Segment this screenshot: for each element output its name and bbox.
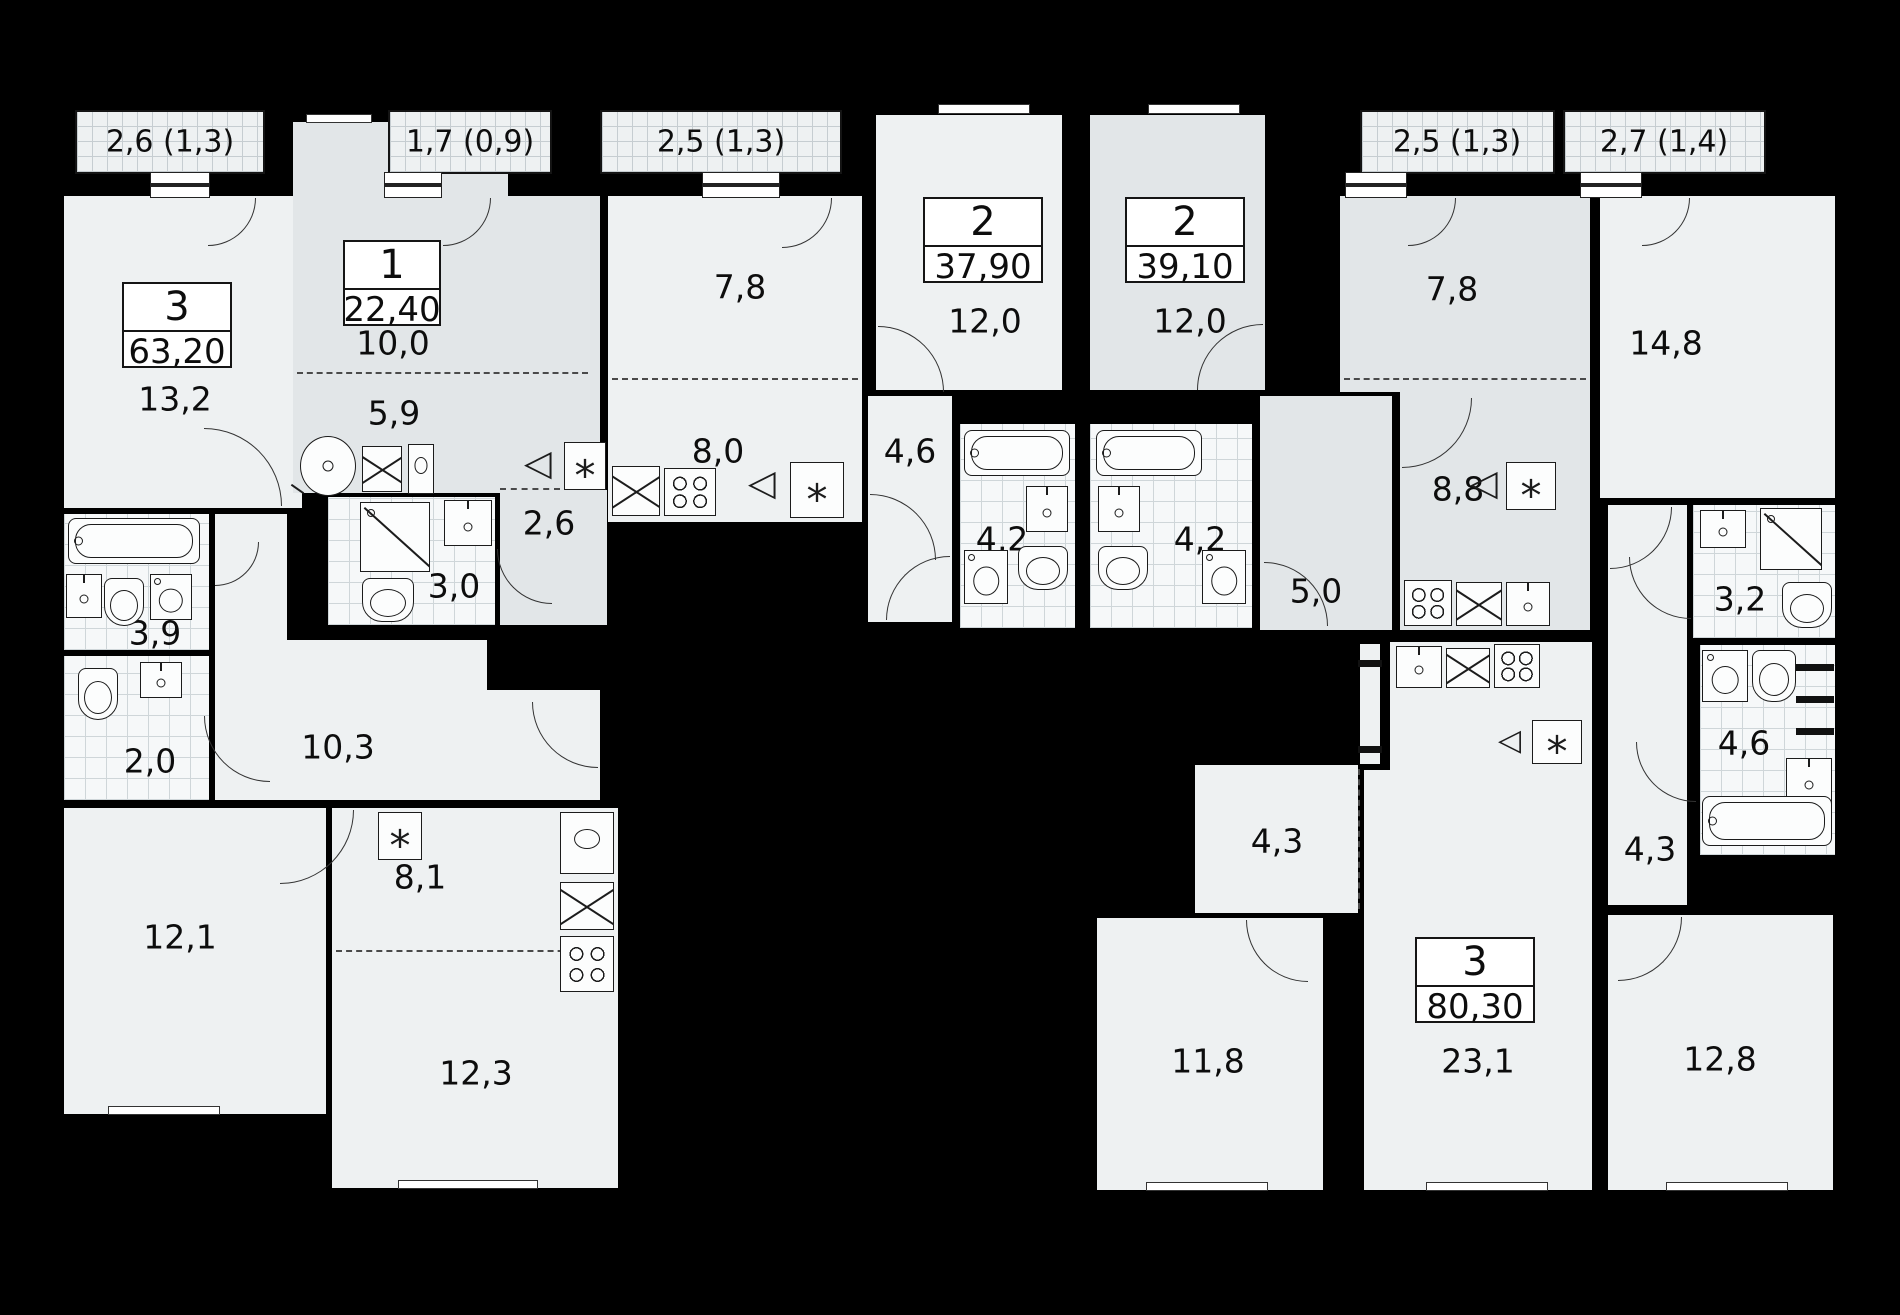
apt2-zone-divider xyxy=(297,372,588,374)
counter-sink-icon xyxy=(1506,582,1550,626)
apt5-type: 3 xyxy=(1417,939,1533,987)
apt5-infobox: 3 80,30 xyxy=(1415,937,1535,1023)
window xyxy=(1146,1182,1268,1191)
cooktop-icon xyxy=(664,468,716,516)
washing-machine-icon xyxy=(964,550,1008,604)
apt3-type: 2 xyxy=(925,199,1041,247)
apt3-area: 37,90 xyxy=(925,247,1041,287)
apt4-infobox: 2 39,10 xyxy=(1125,197,1245,283)
apt1-area: 63,20 xyxy=(124,332,230,372)
apt1-room-12-1 xyxy=(64,808,326,1114)
apt5-label-4-6: 4,6 xyxy=(1718,727,1770,762)
apt1-infobox: 3 63,20 xyxy=(122,282,232,368)
apt3-label-4-6: 4,6 xyxy=(884,435,936,470)
window xyxy=(306,114,372,123)
window xyxy=(1148,104,1240,114)
wall-bar xyxy=(1358,746,1382,753)
floor-plan: 2,6 (1,3) 3 63,20 13,2 3,9 2,0 10,3 12,1… xyxy=(0,0,1900,1315)
window-sill xyxy=(384,172,442,198)
window-sill xyxy=(1345,172,1407,198)
vent-cabinet-icon xyxy=(1532,720,1582,764)
apt3-infobox: 2 37,90 xyxy=(923,197,1043,283)
apt4-zone-divider xyxy=(1344,378,1586,380)
sink-icon xyxy=(140,662,182,698)
toilet-icon xyxy=(1782,582,1832,628)
apt2-label-3-0: 3,0 xyxy=(428,570,480,605)
washing-machine-icon xyxy=(150,574,192,620)
vent-funnel-icon xyxy=(1498,726,1521,756)
sink-icon xyxy=(1098,486,1140,532)
balcony-apt5-label: 2,7 (1,4) xyxy=(1600,126,1728,158)
vent-cabinet-icon xyxy=(790,462,844,518)
apt1-label-10-3: 10,3 xyxy=(301,731,374,766)
sink-icon xyxy=(1700,510,1746,548)
window-sill xyxy=(1580,172,1642,198)
window xyxy=(398,1180,538,1189)
sink-icon xyxy=(444,500,492,546)
apt1-hall-10-3 xyxy=(215,640,487,800)
shelf-bar xyxy=(1796,728,1834,735)
apt1-label-3-9: 3,9 xyxy=(129,617,181,652)
apt1-label-13-2: 13,2 xyxy=(138,383,211,418)
balcony-apt2-label: 1,7 (0,9) xyxy=(406,126,534,158)
apt5-label-4-3-hall: 4,3 xyxy=(1624,833,1676,868)
apt5-label-14-8: 14,8 xyxy=(1629,327,1702,362)
shelf-bar xyxy=(1796,664,1834,671)
cooktop-icon xyxy=(1494,644,1540,688)
toilet-icon xyxy=(104,578,144,626)
window xyxy=(938,104,1030,114)
apt2-label-2-6: 2,6 xyxy=(523,507,575,542)
apt4-type: 2 xyxy=(1127,199,1243,247)
kitchen-sink-icon xyxy=(1456,582,1502,626)
apt2-label-10-0: 10,0 xyxy=(356,327,429,362)
apt5-label-11-8: 11,8 xyxy=(1171,1045,1244,1080)
apt5-label-23-1: 23,1 xyxy=(1441,1045,1514,1080)
apt4-label-5-0: 5,0 xyxy=(1290,575,1342,610)
apt5-label-3-2: 3,2 xyxy=(1714,583,1766,618)
apt1-label-12-3: 12,3 xyxy=(439,1057,512,1092)
apt3-hall-4-6 xyxy=(868,396,952,622)
apt2-dash-small xyxy=(500,488,560,490)
toilet-icon xyxy=(1752,650,1796,702)
shower-icon xyxy=(360,502,430,572)
kitchen-sink-icon xyxy=(1446,648,1490,688)
apt5-area: 80,30 xyxy=(1417,987,1533,1027)
round-sink-icon xyxy=(300,436,356,496)
bathtub-icon xyxy=(1096,430,1202,476)
apt3-label-12-0: 12,0 xyxy=(948,305,1021,340)
apt1-label-12-1: 12,1 xyxy=(143,921,216,956)
vent-cabinet-icon xyxy=(564,442,606,490)
fridge-icon xyxy=(408,444,434,494)
bathtub-icon xyxy=(964,430,1070,476)
apt1-hall-entry xyxy=(487,690,600,800)
washing-machine-icon xyxy=(1202,550,1246,604)
apt2-label-5-9: 5,9 xyxy=(368,397,420,432)
apt1-label-8-1: 8,1 xyxy=(394,861,446,896)
apt3-zone-divider xyxy=(612,378,858,380)
apt1-label-2-0: 2,0 xyxy=(124,745,176,780)
balcony-apt1-label: 2,6 (1,3) xyxy=(106,126,234,158)
vent-funnel-icon xyxy=(748,466,776,502)
kitchen-sink-icon xyxy=(612,466,660,516)
fridge-icon xyxy=(560,812,614,874)
toilet-icon xyxy=(362,578,414,622)
sink-icon xyxy=(66,574,102,618)
cooktop-icon xyxy=(1404,580,1452,626)
cooktop-icon xyxy=(560,936,614,992)
balcony-apt4-label: 2,5 (1,3) xyxy=(1393,126,1521,158)
apt5-niche-divider xyxy=(1358,769,1360,909)
window xyxy=(1426,1182,1548,1191)
vent-cabinet-icon xyxy=(1506,462,1556,510)
shelf-bar xyxy=(1796,696,1834,703)
apt2-type: 1 xyxy=(345,242,439,290)
toilet-icon xyxy=(1018,546,1068,590)
bathtub-icon xyxy=(1702,796,1832,846)
kitchen-sink-icon xyxy=(560,882,614,930)
apt3-label-8-0: 8,0 xyxy=(692,435,744,470)
bathtub-icon xyxy=(68,518,200,564)
vent-funnel-icon xyxy=(1470,466,1498,502)
kitchen-sink-icon xyxy=(1396,646,1442,688)
apt4-label-12-0: 12,0 xyxy=(1153,305,1226,340)
kitchen-sink-icon xyxy=(362,446,402,492)
window xyxy=(1666,1182,1788,1191)
balcony-apt3-label: 2,5 (1,3) xyxy=(657,126,785,158)
apt4-label-7-8: 7,8 xyxy=(1426,273,1478,308)
window xyxy=(108,1106,220,1115)
window-sill xyxy=(702,172,780,198)
apt2-infobox: 1 22,40 xyxy=(343,240,441,326)
apt5-label-12-8: 12,8 xyxy=(1683,1043,1756,1078)
apt1-type: 3 xyxy=(124,284,230,332)
apt3-label-7-8: 7,8 xyxy=(714,271,766,306)
vent-cabinet-icon xyxy=(378,812,422,860)
vent-funnel-icon xyxy=(524,446,552,482)
window-sill xyxy=(150,172,210,198)
shower-icon xyxy=(1760,508,1822,570)
toilet-icon xyxy=(1098,546,1148,590)
sink-icon xyxy=(1026,486,1068,532)
wall-bar xyxy=(1358,660,1382,667)
apt4-area: 39,10 xyxy=(1127,247,1243,287)
washing-machine-icon xyxy=(1702,650,1748,702)
apt5-label-4-3-niche: 4,3 xyxy=(1251,825,1303,860)
toilet-icon xyxy=(78,668,118,720)
